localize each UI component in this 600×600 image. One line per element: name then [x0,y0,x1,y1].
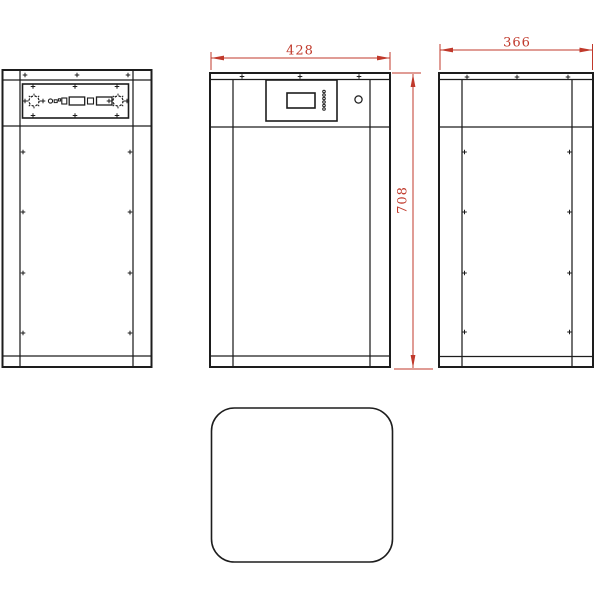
drawing-canvas: 428 366 708 [0,0,600,600]
arrowhead-left-icon [440,48,453,53]
arrowhead-left-icon [211,56,224,61]
top-view-outline [212,408,393,562]
dimension-front-width: 428 [211,44,390,71]
power-button [355,96,362,103]
drawing-page: 428 366 708 [0,0,600,600]
back-view-screw-marks [21,73,133,336]
small-terminal [54,100,57,103]
arrowhead-right-icon [580,48,593,53]
top-view [212,408,393,562]
dimension-side-depth: 366 [440,36,593,71]
port-small [62,98,67,104]
port-wide [69,97,85,105]
dimension-label-height: 708 [396,186,411,214]
connector-panel-ports [48,97,112,105]
dimension-label-width: 428 [286,44,314,59]
back-view [3,70,152,367]
side-view [439,73,593,367]
port-small [88,98,94,104]
arrowhead-down-icon [411,355,416,368]
fan-vent-left-icon [27,94,42,109]
display-screen [287,93,315,108]
side-view-screw-marks [462,75,572,335]
round-port [48,99,52,103]
front-view-outline [210,73,390,367]
small-terminal [58,99,60,101]
dimension-label-depth: 366 [503,36,531,51]
arrowhead-right-icon [377,56,390,61]
arrowhead-up-icon [411,74,416,87]
dimension-height: 708 [392,73,433,369]
fan-vent-right-icon [111,94,126,109]
keypad-button-column [323,90,326,110]
front-view [210,73,390,367]
control-panel [266,80,337,121]
front-view-screw-marks [240,74,362,79]
